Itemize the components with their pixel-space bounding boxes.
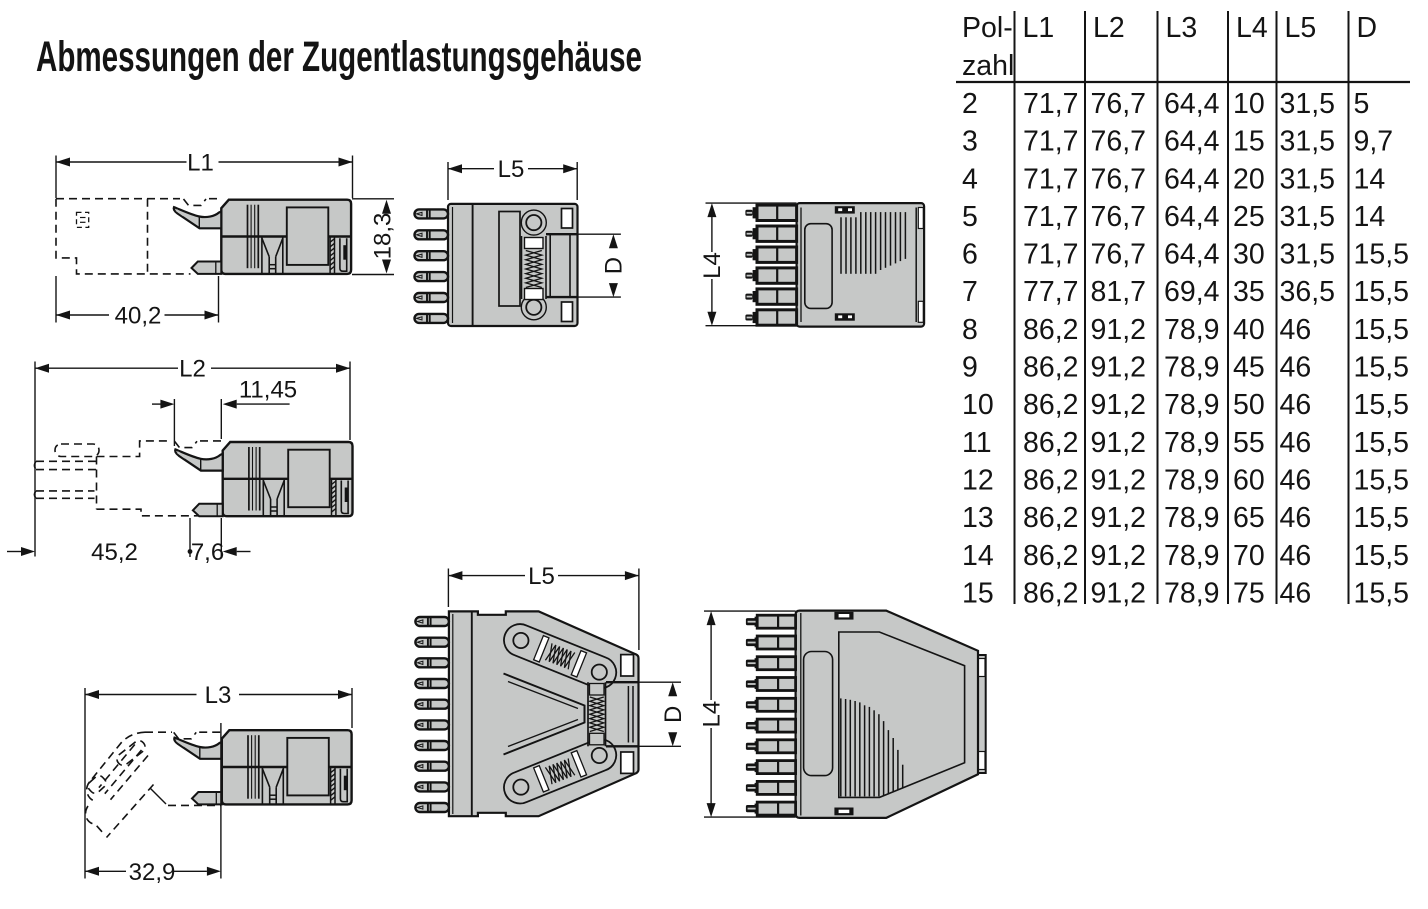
svg-text:15,5: 15,5: [1354, 389, 1409, 421]
svg-text:25: 25: [1233, 201, 1265, 233]
svg-text:D: D: [660, 706, 687, 723]
svg-text:60: 60: [1233, 465, 1265, 497]
svg-text:15,5: 15,5: [1354, 276, 1409, 308]
svg-text:86,2: 86,2: [1023, 427, 1078, 459]
svg-text:5: 5: [1354, 88, 1370, 120]
svg-text:15: 15: [962, 578, 994, 610]
svg-text:86,2: 86,2: [1023, 352, 1078, 384]
svg-text:L2: L2: [179, 356, 206, 383]
svg-text:31,5: 31,5: [1280, 88, 1335, 120]
svg-text:L1: L1: [1023, 12, 1055, 44]
svg-text:Pol-: Pol-: [962, 12, 1013, 44]
svg-text:78,9: 78,9: [1164, 352, 1219, 384]
svg-text:3: 3: [962, 126, 978, 158]
svg-text:14: 14: [1354, 163, 1386, 195]
svg-text:10: 10: [1233, 88, 1265, 120]
svg-text:15,5: 15,5: [1354, 239, 1409, 271]
svg-text:15,5: 15,5: [1354, 314, 1409, 346]
svg-text:71,7: 71,7: [1023, 239, 1078, 271]
svg-text:36,5: 36,5: [1280, 276, 1335, 308]
svg-text:78,9: 78,9: [1164, 578, 1219, 610]
svg-text:91,2: 91,2: [1091, 427, 1146, 459]
svg-text:46: 46: [1280, 352, 1312, 384]
svg-text:7,6: 7,6: [191, 539, 224, 566]
svg-text:78,9: 78,9: [1164, 540, 1219, 572]
svg-text:46: 46: [1280, 540, 1312, 572]
svg-text:15,5: 15,5: [1354, 465, 1409, 497]
svg-text:40,2: 40,2: [115, 303, 162, 330]
svg-text:91,2: 91,2: [1091, 314, 1146, 346]
svg-text:76,7: 76,7: [1091, 163, 1146, 195]
svg-text:15,5: 15,5: [1354, 578, 1409, 610]
svg-text:71,7: 71,7: [1023, 88, 1078, 120]
svg-text:78,9: 78,9: [1164, 314, 1219, 346]
svg-text:64,4: 64,4: [1164, 239, 1220, 271]
svg-text:86,2: 86,2: [1023, 465, 1078, 497]
svg-text:46: 46: [1280, 427, 1312, 459]
svg-text:71,7: 71,7: [1023, 201, 1078, 233]
svg-text:L5: L5: [498, 156, 525, 183]
svg-text:9,7: 9,7: [1354, 126, 1394, 158]
svg-text:78,9: 78,9: [1164, 389, 1219, 421]
svg-text:14: 14: [962, 540, 994, 572]
svg-text:32,9: 32,9: [129, 859, 176, 886]
svg-text:64,4: 64,4: [1164, 88, 1220, 120]
svg-text:91,2: 91,2: [1091, 540, 1146, 572]
svg-text:86,2: 86,2: [1023, 578, 1078, 610]
svg-text:86,2: 86,2: [1023, 314, 1078, 346]
svg-text:L5: L5: [528, 563, 555, 590]
svg-text:76,7: 76,7: [1091, 126, 1146, 158]
svg-text:15,5: 15,5: [1354, 427, 1409, 459]
svg-text:L2: L2: [1093, 12, 1125, 44]
svg-text:7: 7: [962, 276, 978, 308]
svg-text:35: 35: [1233, 276, 1265, 308]
svg-text:46: 46: [1280, 465, 1312, 497]
svg-text:9: 9: [962, 352, 978, 384]
svg-text:86,2: 86,2: [1023, 540, 1078, 572]
svg-text:71,7: 71,7: [1023, 126, 1078, 158]
svg-text:86,2: 86,2: [1023, 502, 1078, 534]
svg-text:D: D: [1357, 12, 1378, 44]
svg-text:91,2: 91,2: [1091, 578, 1146, 610]
svg-text:64,4: 64,4: [1164, 201, 1220, 233]
svg-text:71,7: 71,7: [1023, 163, 1078, 195]
svg-text:15,5: 15,5: [1354, 502, 1409, 534]
svg-text:D: D: [601, 257, 628, 274]
svg-text:86,2: 86,2: [1023, 389, 1078, 421]
svg-text:76,7: 76,7: [1091, 201, 1146, 233]
svg-text:91,2: 91,2: [1091, 389, 1146, 421]
svg-text:11,45: 11,45: [239, 377, 297, 404]
svg-text:2: 2: [962, 88, 978, 120]
svg-text:45,2: 45,2: [91, 539, 138, 566]
svg-text:31,5: 31,5: [1280, 163, 1335, 195]
svg-text:91,2: 91,2: [1091, 352, 1146, 384]
svg-text:L3: L3: [205, 682, 232, 709]
svg-text:30: 30: [1233, 239, 1265, 271]
svg-text:64,4: 64,4: [1164, 163, 1220, 195]
svg-text:45: 45: [1233, 352, 1265, 384]
svg-text:L4: L4: [1236, 12, 1268, 44]
svg-text:81,7: 81,7: [1091, 276, 1146, 308]
svg-text:91,2: 91,2: [1091, 465, 1146, 497]
svg-text:75: 75: [1233, 578, 1265, 610]
svg-text:18,3: 18,3: [370, 213, 397, 260]
svg-text:91,2: 91,2: [1091, 502, 1146, 534]
svg-text:5: 5: [962, 201, 978, 233]
svg-text:78,9: 78,9: [1164, 502, 1219, 534]
svg-text:L4: L4: [698, 701, 725, 728]
svg-text:10: 10: [962, 389, 994, 421]
svg-text:4: 4: [962, 163, 978, 195]
svg-text:69,4: 69,4: [1164, 276, 1220, 308]
svg-text:76,7: 76,7: [1091, 88, 1146, 120]
svg-text:L5: L5: [1285, 12, 1317, 44]
svg-text:L4: L4: [699, 252, 726, 279]
svg-text:Abmessungen der Zugentlastungs: Abmessungen der Zugentlastungsgehäuse: [36, 33, 642, 81]
svg-text:46: 46: [1280, 389, 1312, 421]
svg-text:50: 50: [1233, 389, 1265, 421]
svg-text:70: 70: [1233, 540, 1265, 572]
svg-text:64,4: 64,4: [1164, 126, 1220, 158]
svg-text:77,7: 77,7: [1023, 276, 1078, 308]
svg-text:46: 46: [1280, 314, 1312, 346]
svg-text:L1: L1: [187, 150, 214, 177]
svg-text:65: 65: [1233, 502, 1265, 534]
svg-text:13: 13: [962, 502, 994, 534]
svg-text:31,5: 31,5: [1280, 201, 1335, 233]
svg-text:11: 11: [962, 427, 992, 459]
svg-text:20: 20: [1233, 163, 1265, 195]
svg-text:76,7: 76,7: [1091, 239, 1146, 271]
svg-text:31,5: 31,5: [1280, 239, 1335, 271]
svg-text:15,5: 15,5: [1354, 352, 1409, 384]
svg-text:L3: L3: [1166, 12, 1198, 44]
svg-text:6: 6: [962, 239, 978, 271]
svg-text:14: 14: [1354, 201, 1386, 233]
svg-text:zahl: zahl: [962, 50, 1014, 82]
svg-text:40: 40: [1233, 314, 1265, 346]
svg-text:46: 46: [1280, 502, 1312, 534]
svg-text:12: 12: [962, 465, 994, 497]
svg-text:8: 8: [962, 314, 978, 346]
svg-text:78,9: 78,9: [1164, 465, 1219, 497]
svg-text:15,5: 15,5: [1354, 540, 1409, 572]
svg-text:46: 46: [1280, 578, 1312, 610]
svg-text:55: 55: [1233, 427, 1265, 459]
svg-text:78,9: 78,9: [1164, 427, 1219, 459]
svg-text:15: 15: [1233, 126, 1265, 158]
svg-text:31,5: 31,5: [1280, 126, 1335, 158]
